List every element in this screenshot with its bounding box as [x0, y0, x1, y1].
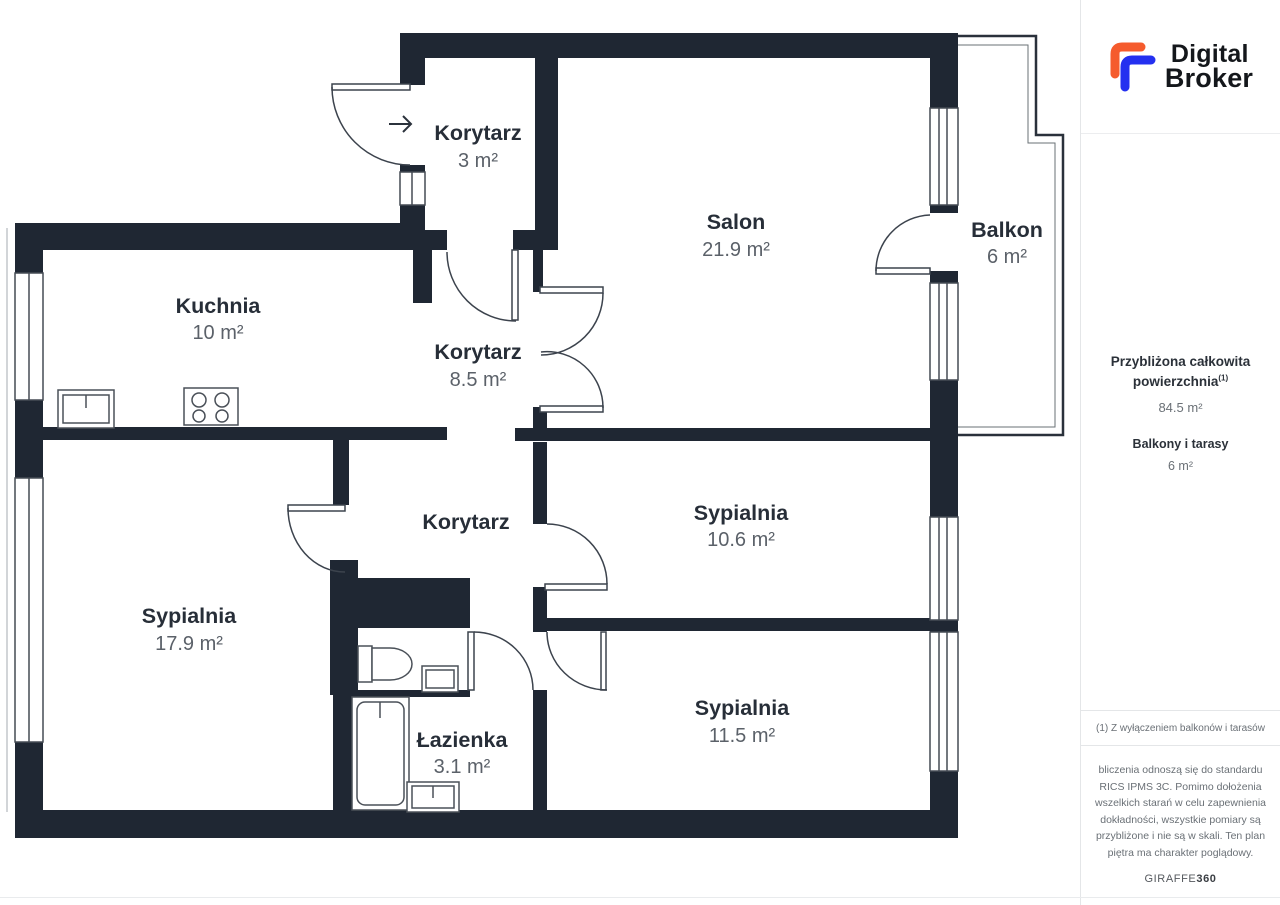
svg-text:3 m²: 3 m² [458, 150, 498, 172]
balcony-summary-title: Balkony i tarasy [1081, 437, 1280, 451]
floor-plan-page: Korytarz 3 m² Salon 21.9 m² Balkon 6 m² … [0, 0, 1280, 905]
room-label-bathroom: Łazienka 3.1 m² [417, 728, 509, 778]
svg-text:6 m²: 6 m² [987, 246, 1027, 268]
svg-text:Sypialnia: Sypialnia [694, 501, 789, 525]
bedroom1-door [545, 524, 607, 590]
footnote-marker: (1) [1218, 373, 1228, 382]
bathtub [352, 697, 409, 810]
svg-text:Balkon: Balkon [971, 218, 1043, 242]
wc-sink [422, 666, 458, 692]
hall-sidelight [400, 172, 425, 205]
svg-text:21.9 m²: 21.9 m² [702, 239, 770, 261]
svg-text:Korytarz: Korytarz [434, 340, 521, 364]
hall-door [447, 250, 518, 321]
total-area-value: 84.5 m² [1081, 400, 1280, 415]
svg-text:10 m²: 10 m² [192, 322, 243, 344]
disclaimer-text: bliczenia odnoszą się do standardu RICS … [1081, 746, 1280, 861]
kitchen-sink [58, 390, 114, 428]
room-label-hall-top: Korytarz 3 m² [434, 121, 521, 172]
salon-double-door [540, 287, 603, 412]
room-label-balcony: Balkon 6 m² [971, 218, 1043, 268]
brand-logo: Digital Broker [1081, 0, 1280, 134]
salon-window-2 [930, 283, 958, 380]
room-label-salon: Salon 21.9 m² [702, 210, 770, 261]
room-label-kitchen: Kuchnia 10 m² [176, 294, 262, 344]
svg-text:Kuchnia: Kuchnia [176, 294, 262, 318]
svg-text:10.6 m²: 10.6 m² [707, 529, 775, 551]
giraffe-suffix: 360 [1196, 873, 1216, 885]
svg-text:3.1 m²: 3.1 m² [434, 756, 491, 778]
svg-text:Sypialnia: Sypialnia [142, 604, 237, 628]
bathroom-door [468, 632, 533, 690]
giraffe360-watermark: GIRAFFE360 [1081, 873, 1280, 885]
salon-window-1 [930, 108, 958, 205]
svg-text:8.5 m²: 8.5 m² [450, 369, 507, 391]
room-label-hall-mid: Korytarz 8.5 m² [434, 340, 521, 391]
area-summary: Przybliżona całkowita powierzchnia(1) 84… [1081, 352, 1280, 473]
svg-text:11.5 m²: 11.5 m² [709, 725, 776, 747]
svg-text:Łazienka: Łazienka [417, 728, 509, 752]
room-label-hall-lower: Korytarz [422, 510, 509, 534]
footnote-text: (1) Z wyłączeniem balkonów i tarasów [1081, 711, 1280, 745]
svg-text:Korytarz: Korytarz [422, 510, 509, 534]
floor-plan-svg: Korytarz 3 m² Salon 21.9 m² Balkon 6 m² … [0, 0, 1080, 905]
floor-plan: Korytarz 3 m² Salon 21.9 m² Balkon 6 m² … [0, 0, 1080, 905]
giraffe-brand: GIRAFFE [1144, 873, 1196, 885]
svg-text:Salon: Salon [707, 210, 766, 234]
room-label-bedroom3: Sypialnia 11.5 m² [695, 696, 790, 747]
entrance-arrow-icon [389, 116, 411, 132]
page-bottom-border [0, 897, 1280, 898]
bedroom2-window [15, 478, 43, 742]
svg-text:17.9 m²: 17.9 m² [155, 633, 223, 655]
balcony-area-value: 6 m² [1081, 459, 1280, 473]
svg-text:Sypialnia: Sypialnia [695, 696, 790, 720]
room-label-bedroom2: Sypialnia 17.9 m² [142, 604, 237, 655]
sidebar: Digital Broker Przybliżona całkowita pow… [1080, 0, 1280, 905]
sidebar-footer: (1) Z wyłączeniem balkonów i tarasów bli… [1081, 710, 1280, 885]
bedroom1-window [930, 517, 958, 620]
summary-title: Przybliżona całkowita powierzchnia(1) [1081, 352, 1280, 391]
bedroom3-window [930, 632, 958, 771]
brand-wordmark: Digital Broker [1165, 43, 1253, 91]
bathroom-sink [407, 782, 459, 812]
brand-line2: Broker [1165, 66, 1253, 91]
balcony-door [876, 215, 930, 274]
logo-mark-icon [1108, 39, 1158, 95]
stove [184, 388, 238, 425]
bedroom3-door [547, 632, 607, 690]
kitchen-window [15, 273, 43, 400]
room-label-bedroom1: Sypialnia 10.6 m² [694, 501, 789, 551]
toilet [358, 646, 412, 682]
svg-text:Korytarz: Korytarz [434, 121, 521, 145]
